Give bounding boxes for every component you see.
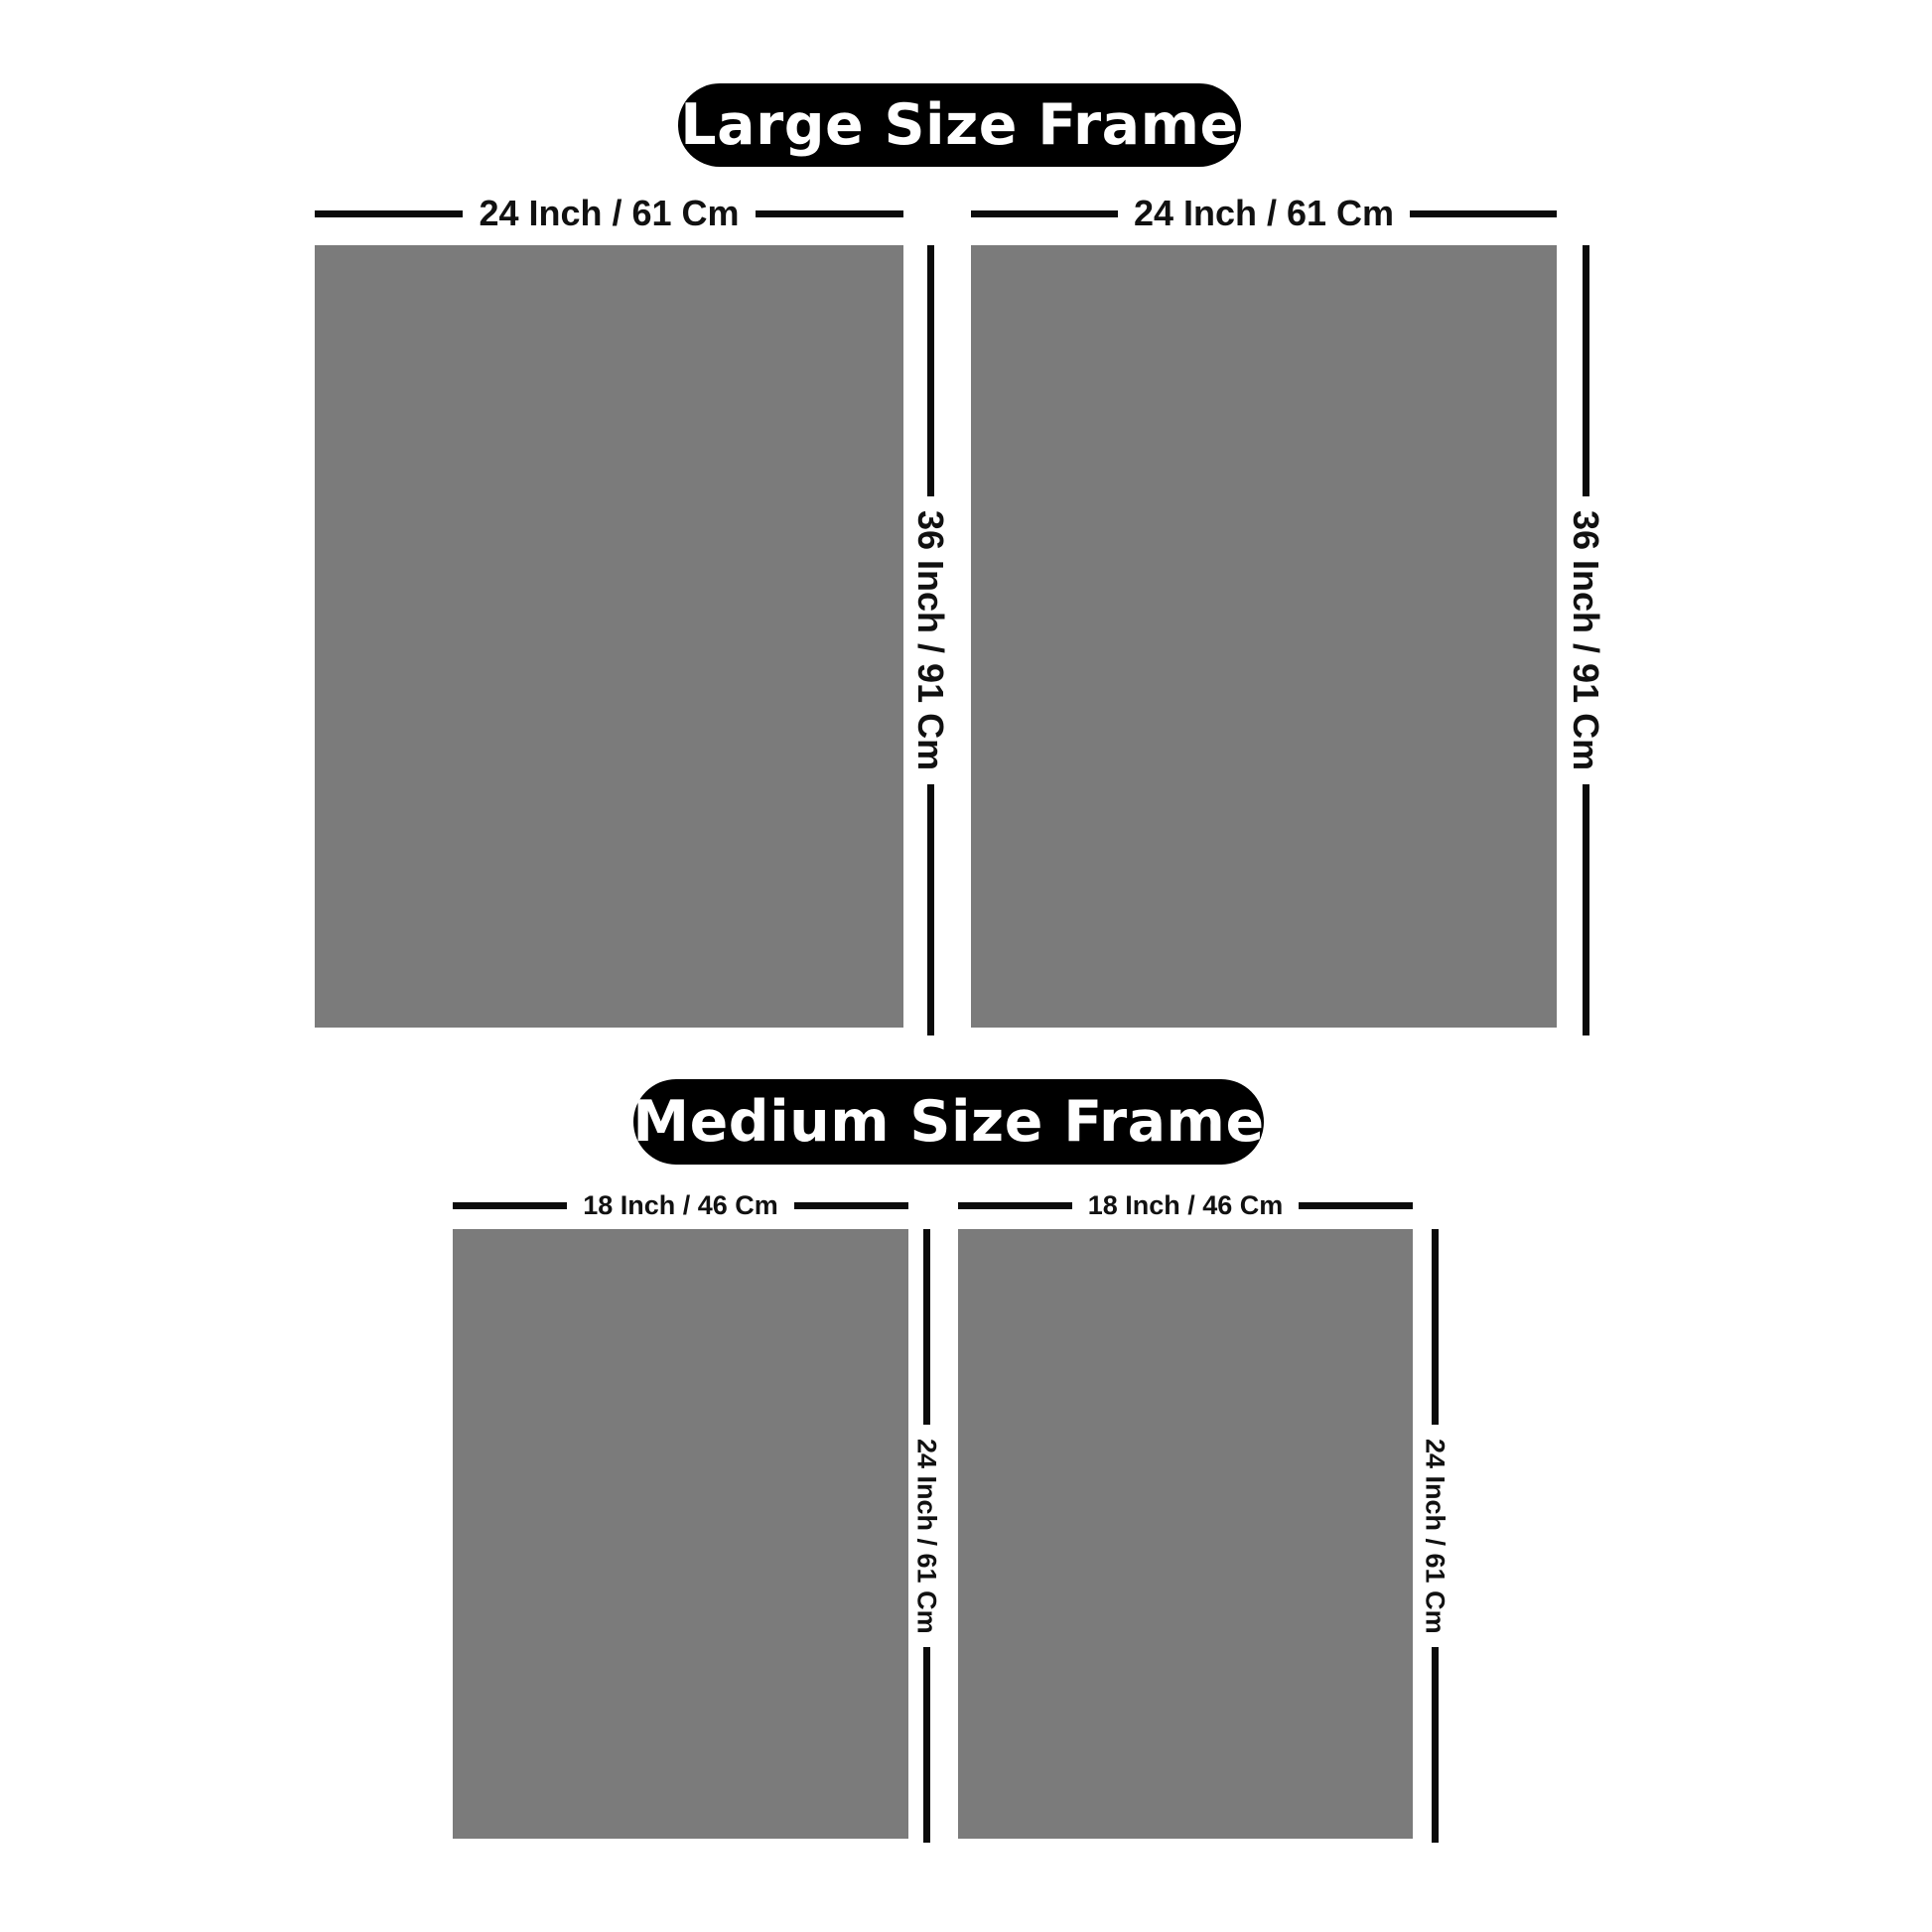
height-dimension-label: 24 Inch / 61 Cm xyxy=(911,1439,942,1634)
height-dimension-medium-left: 24 Inch / 61 Cm xyxy=(906,1229,946,1843)
height-dimension-medium-right: 24 Inch / 61 Cm xyxy=(1415,1229,1454,1843)
width-dimension-medium-right: 18 Inch / 46 Cm xyxy=(958,1190,1413,1220)
dimension-line-left xyxy=(971,210,1118,217)
width-dimension-label: 18 Inch / 46 Cm xyxy=(1088,1190,1284,1221)
dimension-line-top xyxy=(927,245,934,496)
dimension-line-left xyxy=(453,1202,567,1209)
height-dimension-large-right: 36 Inch / 91 Cm xyxy=(1566,245,1605,1035)
width-dimension-label: 18 Inch / 46 Cm xyxy=(583,1190,778,1221)
height-dimension-label: 36 Inch / 91 Cm xyxy=(1565,510,1606,770)
medium-frame-right-placeholder xyxy=(958,1229,1413,1839)
dimension-line-bottom xyxy=(1583,784,1589,1035)
height-dimension-label: 24 Inch / 61 Cm xyxy=(1420,1439,1450,1634)
dimension-line-top xyxy=(923,1229,930,1425)
dimension-line-bottom xyxy=(923,1647,930,1843)
height-dimension-label: 36 Inch / 91 Cm xyxy=(909,510,951,770)
width-dimension-label: 24 Inch / 61 Cm xyxy=(1134,193,1394,234)
dimension-line-top xyxy=(1432,1229,1439,1425)
medium-frame-left-placeholder xyxy=(453,1229,908,1839)
dimension-line-right xyxy=(1410,210,1557,217)
dimension-line-left xyxy=(315,210,463,217)
dimension-line-bottom xyxy=(927,784,934,1035)
frame-size-guide: Large Size Frame 24 Inch / 61 Cm 24 Inch… xyxy=(0,0,1932,1932)
dimension-line-top xyxy=(1583,245,1589,496)
width-dimension-label: 24 Inch / 61 Cm xyxy=(479,193,739,234)
dimension-line-right xyxy=(1299,1202,1413,1209)
dimension-line-left xyxy=(958,1202,1072,1209)
dimension-line-right xyxy=(794,1202,908,1209)
medium-size-title: Medium Size Frame xyxy=(633,1079,1264,1165)
dimension-line-right xyxy=(756,210,903,217)
large-frame-right-placeholder xyxy=(971,245,1557,1028)
dimension-line-bottom xyxy=(1432,1647,1439,1843)
large-frame-left-placeholder xyxy=(315,245,903,1028)
width-dimension-large-right: 24 Inch / 61 Cm xyxy=(971,196,1557,231)
width-dimension-large-left: 24 Inch / 61 Cm xyxy=(315,196,903,231)
height-dimension-large-left: 36 Inch / 91 Cm xyxy=(910,245,950,1035)
width-dimension-medium-left: 18 Inch / 46 Cm xyxy=(453,1190,908,1220)
large-size-title: Large Size Frame xyxy=(678,83,1241,167)
